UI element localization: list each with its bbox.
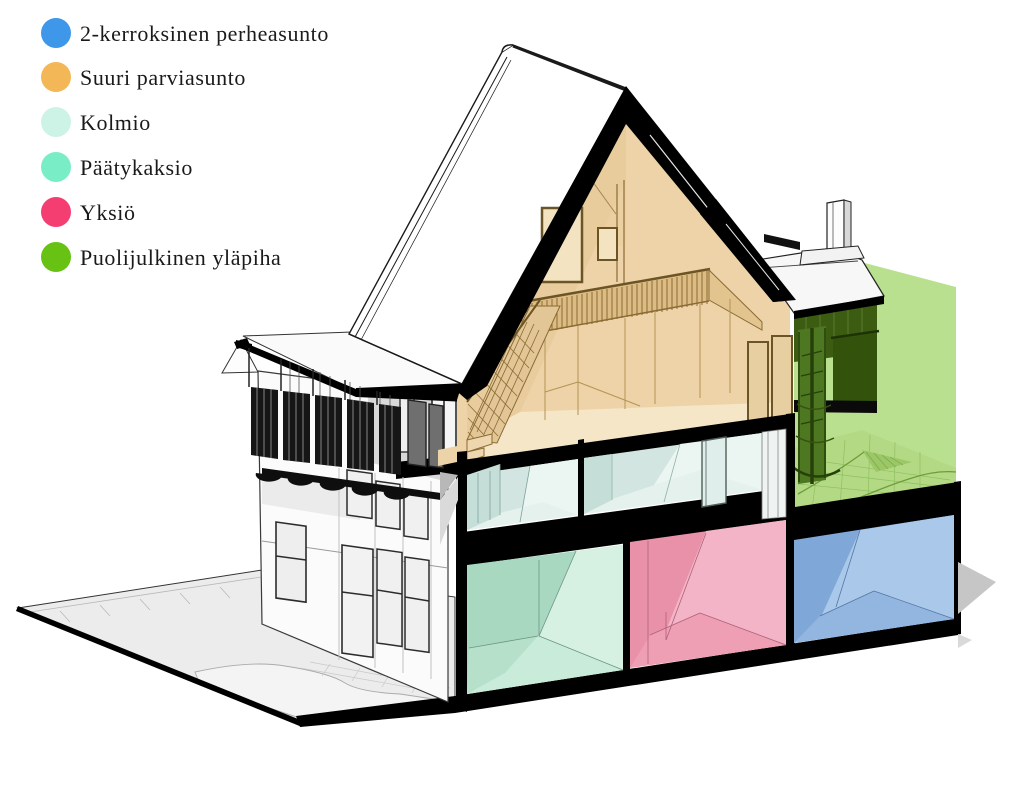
svg-text:Puolijulkinen yläpiha: Puolijulkinen yläpiha — [80, 245, 281, 270]
svg-text:Suuri parviasunto: Suuri parviasunto — [80, 65, 246, 90]
svg-text:Päätykaksio: Päätykaksio — [80, 155, 193, 180]
svg-text:Yksiö: Yksiö — [80, 200, 136, 225]
svg-text:Kolmio: Kolmio — [80, 110, 151, 135]
svg-text:2-kerroksinen perheasunto: 2-kerroksinen perheasunto — [80, 21, 329, 46]
